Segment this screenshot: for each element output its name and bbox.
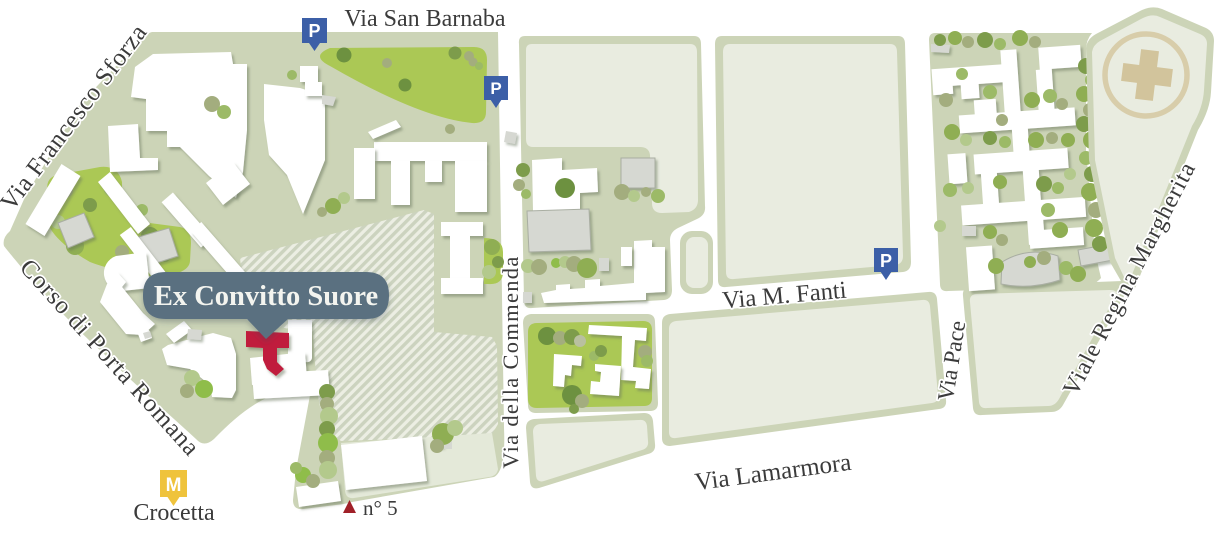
svg-text:P: P — [308, 21, 320, 41]
svg-text:M: M — [166, 475, 182, 496]
svg-text:n° 5: n° 5 — [363, 496, 398, 520]
svg-text:Via della Commenda: Via della Commenda — [498, 255, 523, 468]
svg-text:Via San Barnaba: Via San Barnaba — [344, 6, 506, 32]
svg-text:Crocetta: Crocetta — [133, 500, 215, 526]
svg-text:P: P — [490, 79, 501, 98]
svg-text:P: P — [880, 251, 892, 271]
svg-text:Ex Convitto Suore: Ex Convitto Suore — [154, 281, 378, 312]
